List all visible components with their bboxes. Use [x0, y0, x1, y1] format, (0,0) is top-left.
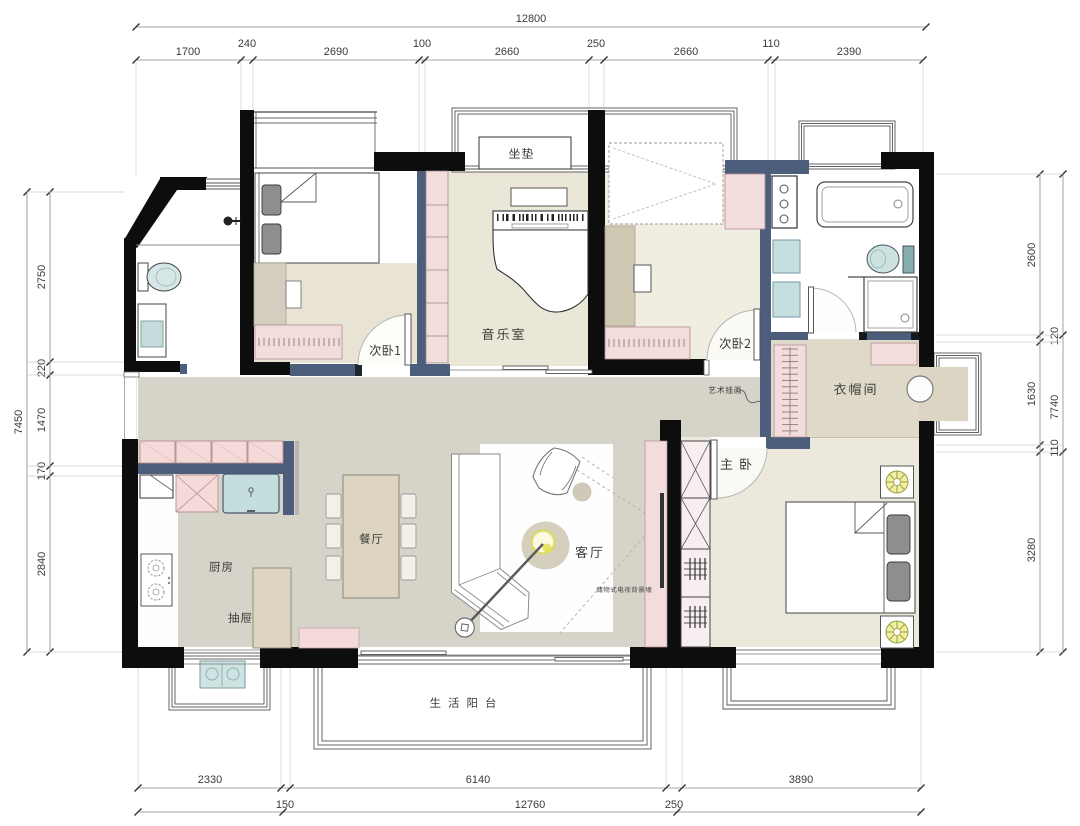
- svg-text:2390: 2390: [837, 46, 861, 58]
- svg-text:250: 250: [665, 799, 683, 811]
- svg-text:12760: 12760: [515, 799, 546, 811]
- svg-text:120: 120: [1049, 327, 1061, 345]
- svg-text:2600: 2600: [1026, 243, 1038, 267]
- svg-text:1630: 1630: [1026, 382, 1038, 406]
- svg-text:170: 170: [36, 462, 48, 480]
- svg-text:3890: 3890: [789, 774, 813, 786]
- svg-text:7450: 7450: [13, 410, 25, 434]
- svg-text:240: 240: [238, 38, 256, 50]
- svg-text:2660: 2660: [674, 46, 698, 58]
- svg-text:220: 220: [36, 359, 48, 377]
- svg-text:1470: 1470: [36, 408, 48, 432]
- svg-text:2330: 2330: [198, 774, 222, 786]
- svg-text:3280: 3280: [1026, 538, 1038, 562]
- svg-text:12800: 12800: [516, 13, 547, 25]
- svg-text:2840: 2840: [36, 552, 48, 576]
- svg-text:150: 150: [276, 799, 294, 811]
- svg-text:7740: 7740: [1049, 395, 1061, 419]
- svg-text:6140: 6140: [466, 774, 490, 786]
- svg-text:250: 250: [587, 38, 605, 50]
- svg-text:110: 110: [762, 38, 780, 50]
- svg-text:2690: 2690: [324, 46, 348, 58]
- svg-text:2660: 2660: [495, 46, 519, 58]
- svg-text:110: 110: [1049, 439, 1061, 457]
- svg-text:2750: 2750: [36, 265, 48, 289]
- svg-text:100: 100: [413, 38, 431, 50]
- svg-text:1700: 1700: [176, 46, 200, 58]
